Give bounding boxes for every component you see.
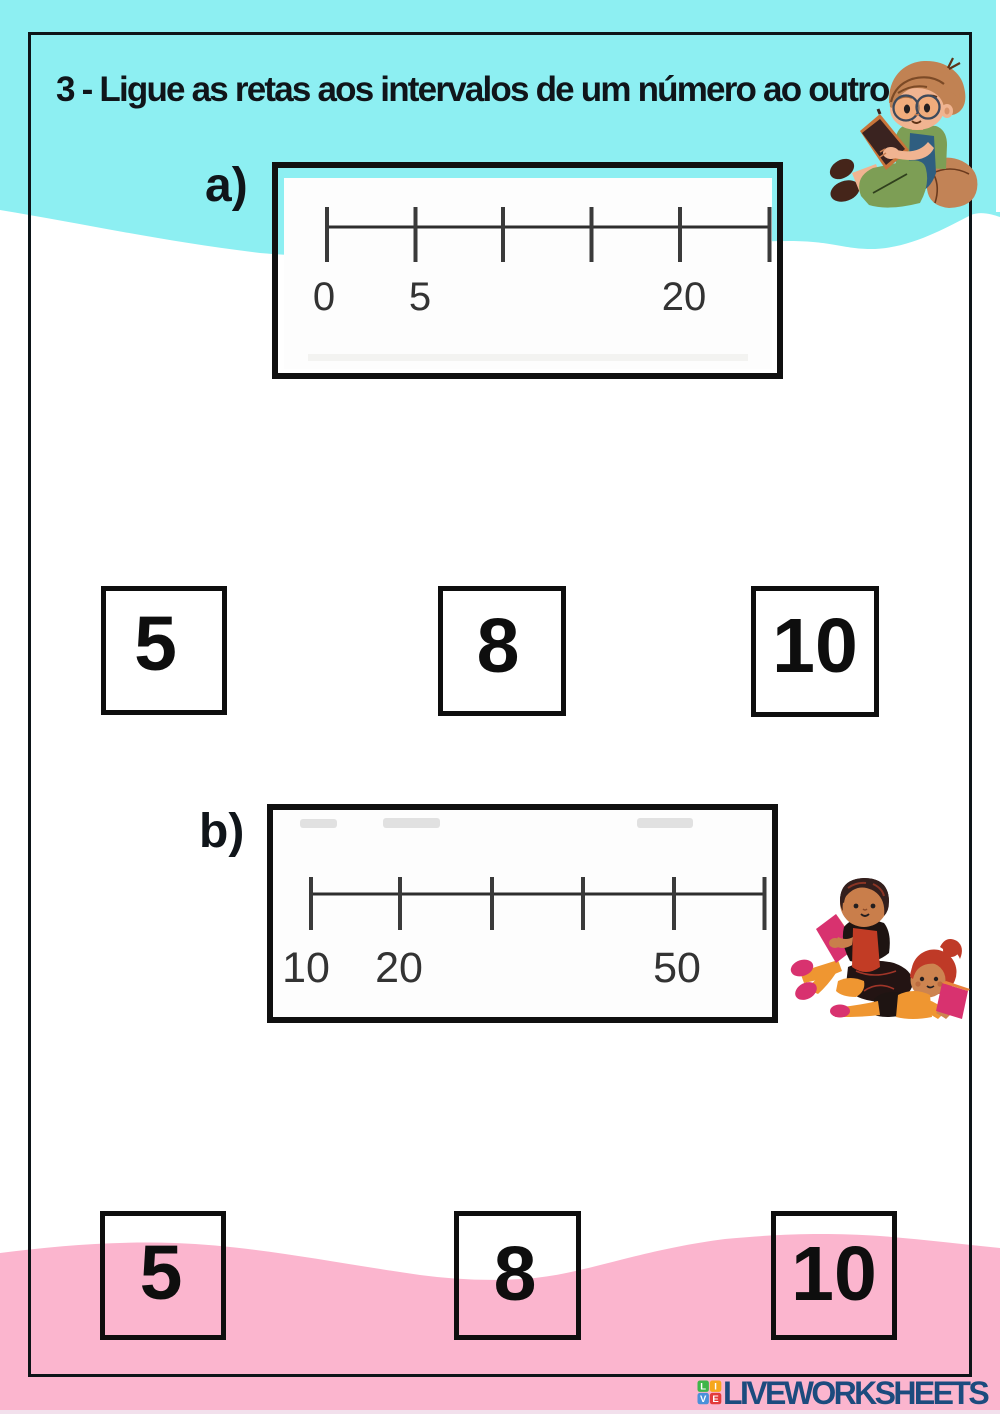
svg-text:20: 20 bbox=[662, 275, 707, 319]
svg-text:E: E bbox=[712, 1394, 718, 1405]
svg-text:L: L bbox=[700, 1382, 706, 1393]
svg-text:0: 0 bbox=[313, 275, 335, 319]
svg-text:50: 50 bbox=[653, 944, 701, 992]
svg-text:V: V bbox=[700, 1394, 707, 1405]
svg-text:I: I bbox=[714, 1382, 717, 1393]
svg-text:10: 10 bbox=[282, 944, 330, 992]
svg-text:5: 5 bbox=[409, 275, 431, 319]
svg-text:20: 20 bbox=[375, 944, 423, 992]
